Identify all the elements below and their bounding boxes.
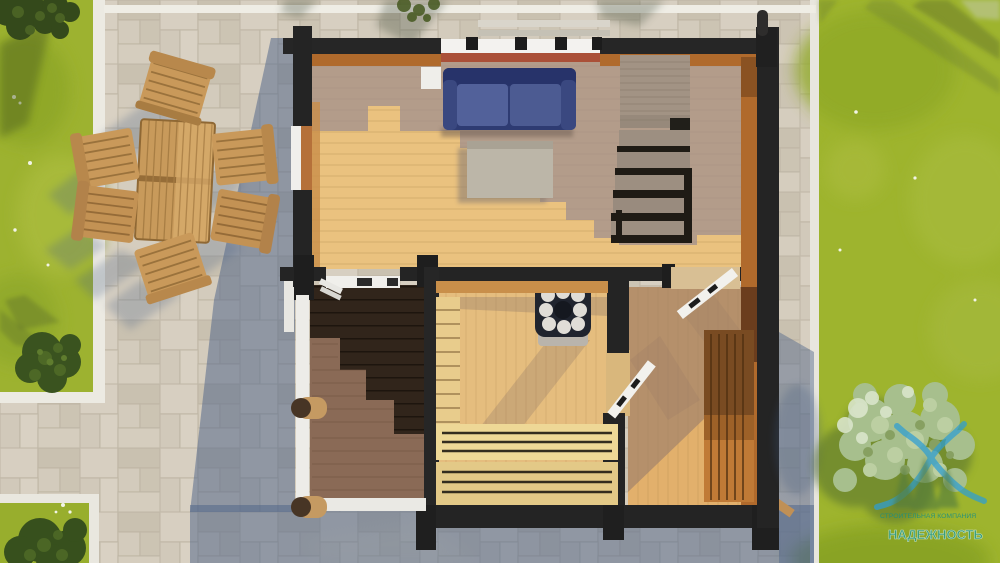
- svg-text:СТРОИТЕЛЬНАЯ КОМПАНИЯ: СТРОИТЕЛЬНАЯ КОМПАНИЯ: [880, 513, 976, 520]
- svg-text:НАДЕЖНОСТЬ: НАДЕЖНОСТЬ: [888, 527, 983, 542]
